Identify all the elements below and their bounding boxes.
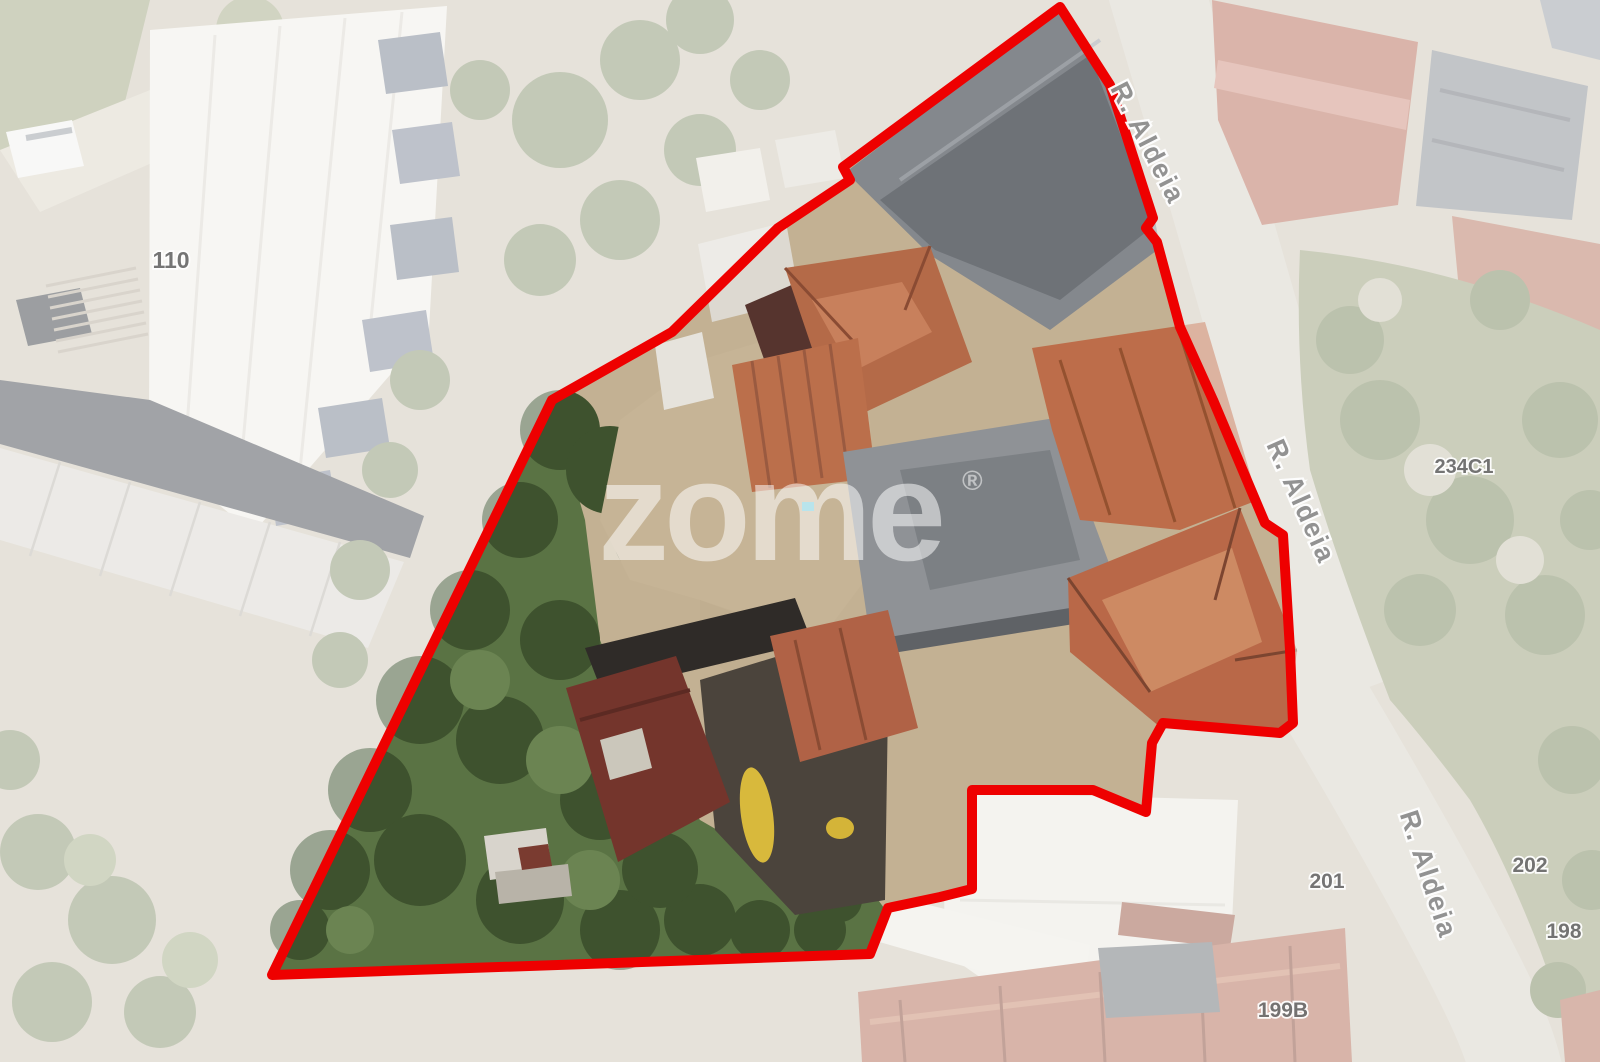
address-label-110: 110 bbox=[152, 247, 189, 273]
address-label-202: 202 bbox=[1512, 854, 1547, 877]
map-canvas: R. Aldeia R. Aldeia R. Aldeia 110 234C1 … bbox=[0, 0, 1600, 1062]
zome-watermark: zome ® bbox=[598, 432, 983, 591]
satellite-map: R. Aldeia R. Aldeia R. Aldeia 110 234C1 … bbox=[0, 0, 1600, 1062]
svg-text:zome: zome bbox=[598, 432, 942, 591]
address-label-199b: 199B bbox=[1258, 999, 1308, 1022]
address-label-198: 198 bbox=[1546, 920, 1581, 943]
address-label-201: 201 bbox=[1309, 870, 1344, 893]
address-label-234c1: 234C1 bbox=[1435, 456, 1494, 478]
svg-text:®: ® bbox=[962, 465, 983, 496]
